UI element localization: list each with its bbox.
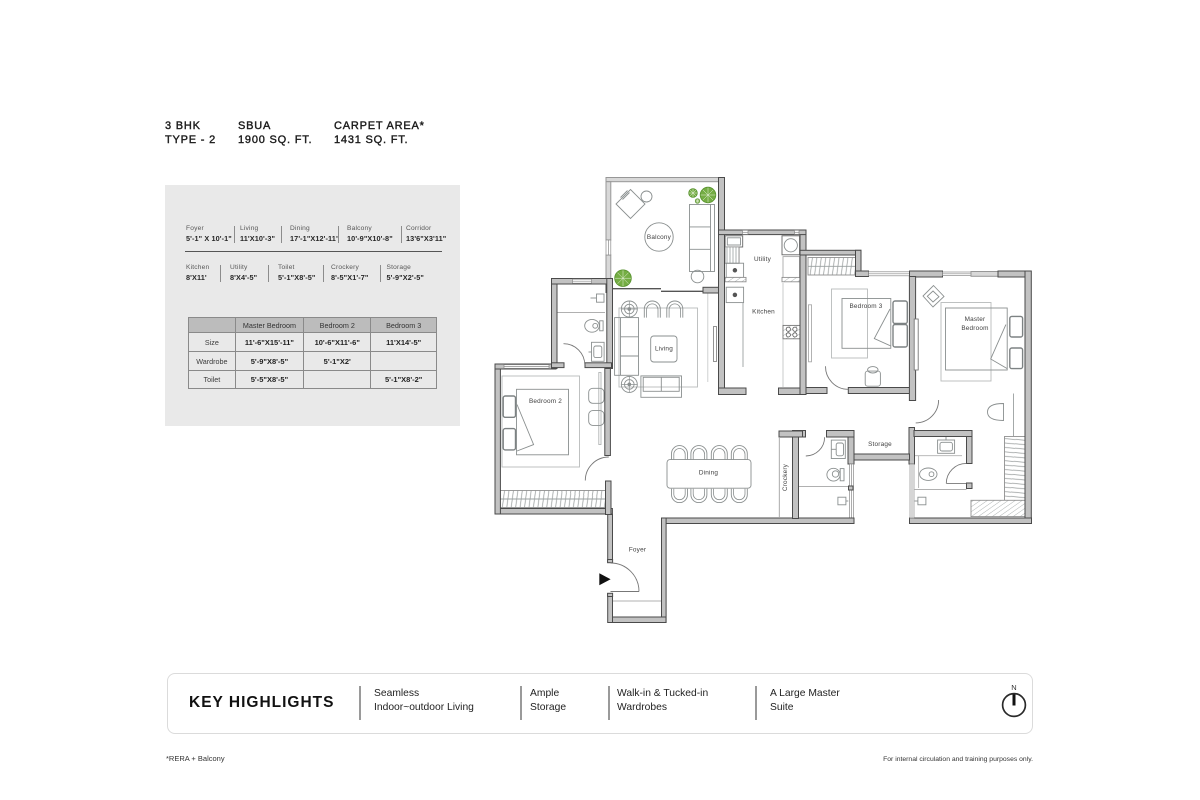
svg-text:Foyer: Foyer bbox=[629, 547, 647, 554]
svg-text:N: N bbox=[1011, 683, 1016, 692]
svg-text:Kitchen: Kitchen bbox=[752, 309, 775, 316]
svg-text:Balcony: Balcony bbox=[647, 234, 672, 241]
svg-text:Master: Master bbox=[965, 316, 986, 323]
svg-text:Bedroom 2: Bedroom 2 bbox=[529, 398, 562, 405]
svg-text:Storage: Storage bbox=[868, 441, 892, 448]
svg-text:Dining: Dining bbox=[699, 470, 719, 477]
svg-text:Bedroom: Bedroom bbox=[961, 325, 988, 332]
svg-text:Utility: Utility bbox=[754, 256, 772, 263]
svg-text:Bedroom 3: Bedroom 3 bbox=[849, 303, 882, 310]
svg-text:Living: Living bbox=[655, 345, 673, 352]
svg-text:Crockery: Crockery bbox=[782, 463, 789, 491]
